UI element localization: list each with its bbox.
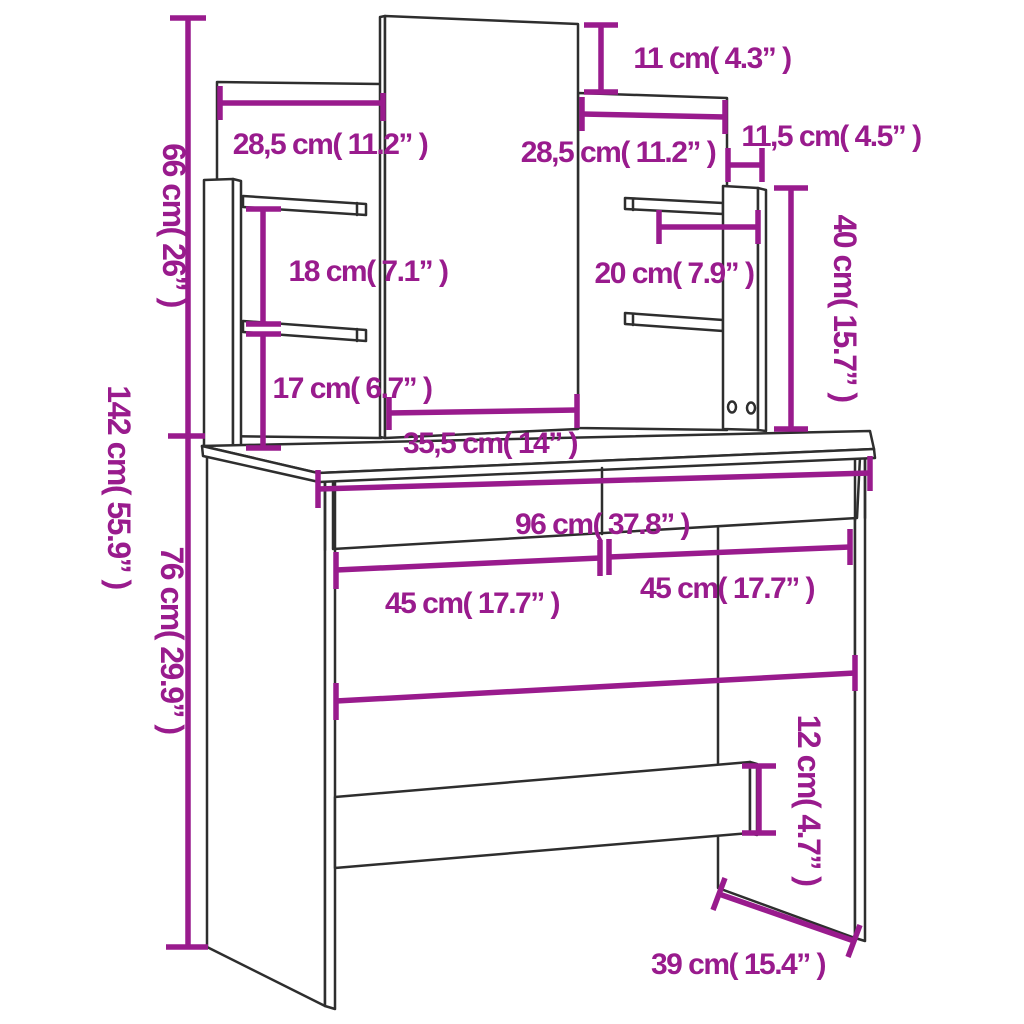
label-96cm: 96 cm( 37.8” ) [515, 508, 690, 541]
stretcher-beam-cap [750, 762, 757, 835]
dim-line [336, 558, 600, 570]
label-76cm: 76 cm( 29.9” ) [154, 546, 190, 734]
left-leg-side [207, 452, 325, 1006]
dim-11-5cm [728, 148, 762, 182]
cam-hole-left [728, 402, 736, 413]
dim-line [582, 114, 725, 117]
label-66cm: 66 cm( 26” ) [156, 143, 192, 307]
label-28-5-right: 28,5 cm( 11.2” ) [521, 136, 716, 169]
label-11cm: 11 cm( 4.3” ) [633, 42, 791, 75]
dim-line [389, 410, 577, 413]
diagram-stage: 11 cm( 4.3” ) 28,5 cm( 11.2” ) 28,5 cm( … [0, 0, 1024, 1024]
label-35-5cm: 35,5 cm( 14” ) [403, 427, 578, 460]
left-column-front [204, 179, 233, 447]
dim-11cm [584, 25, 618, 92]
label-45cm-right: 45 cm( 17.7” ) [640, 572, 815, 605]
dim-40cm [774, 188, 808, 429]
right-leg-front [855, 450, 865, 941]
dressing-table-diagram: 11 cm( 4.3” ) 28,5 cm( 11.2” ) 28,5 cm( … [0, 0, 1024, 1024]
cam-hole-right [747, 403, 755, 414]
label-20cm: 20 cm( 7.9” ) [595, 257, 754, 290]
label-40cm: 40 cm( 15.7” ) [827, 214, 863, 402]
stretcher-beam [335, 762, 750, 868]
label-142cm: 142 cm( 55.9” ) [101, 385, 137, 589]
label-12cm: 12 cm( 4.7” ) [791, 715, 827, 887]
right-column-front [723, 186, 758, 430]
left-column-side [233, 179, 241, 448]
label-39cm: 39 cm( 15.4” ) [651, 948, 826, 981]
label-17cm: 17 cm( 6.7” ) [273, 372, 432, 405]
label-11-5cm: 11,5 cm( 4.5” ) [741, 120, 921, 153]
label-28-5-left: 28,5 cm( 11.2” ) [233, 128, 428, 161]
label-18cm: 18 cm( 7.1” ) [289, 255, 448, 288]
label-45cm-left: 45 cm( 17.7” ) [385, 587, 560, 620]
